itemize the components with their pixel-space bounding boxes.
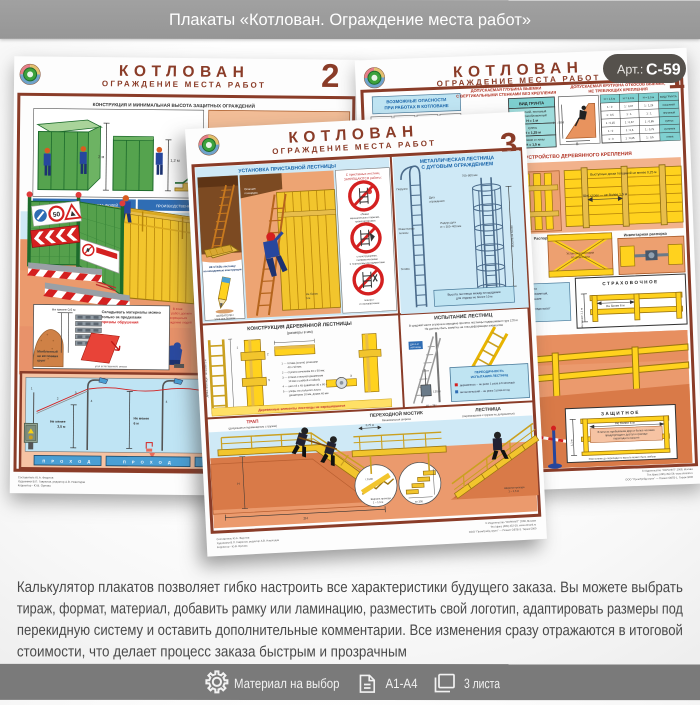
svg-text:50: 50 (53, 211, 61, 219)
svg-text:1 : 0: 1 : 0 (608, 129, 614, 133)
svg-text:6 м: 6 м (133, 421, 139, 425)
svg-text:лестницы: лестницы (410, 345, 421, 349)
svg-text:2: 2 (321, 57, 340, 94)
svg-text:120 кг: 120 кг (433, 389, 441, 393)
svg-text:Калькулятор плакатов позволяет: Калькулятор плакатов позволяет гибко нас… (17, 579, 683, 596)
svg-text:Не более 6 м: Не более 6 м (606, 303, 625, 308)
svg-text:супесь: супесь (665, 119, 674, 122)
svg-text:1 : 0,5: 1 : 0,5 (626, 128, 634, 132)
svg-text:1 : 1: 1 : 1 (626, 112, 632, 116)
svg-text:перекидную систему и оставить: перекидную систему и оставить дополнител… (17, 622, 683, 639)
svg-text:1 : 0,25: 1 : 0,25 (606, 121, 616, 125)
svg-text:1 – 1,5 м: 1 – 1,5 м (373, 500, 384, 505)
svg-text:Н: Н (561, 121, 564, 125)
svg-text:Не более 6 м: Не более 6 м (615, 421, 635, 426)
svg-text:5: 5 (268, 378, 270, 382)
svg-text:0,75 м: 0,75 м (366, 423, 374, 427)
svg-text:Поручни: Поручни (396, 186, 408, 191)
svg-text:ОГРАЖДЕНИЕ МЕСТА РАБОТ: ОГРАЖДЕНИЕ МЕСТА РАБОТ (102, 79, 266, 90)
svg-text:R = 350–400 мм: R = 350–400 мм (440, 224, 461, 229)
svg-text:1 : 0,25: 1 : 0,25 (625, 136, 635, 140)
svg-text:А1-А4: А1-А4 (385, 676, 417, 691)
svg-text:2: 2 (57, 397, 59, 401)
svg-text:Н : В: Н : В (553, 121, 561, 125)
svg-text:ограждения: ограждения (429, 198, 445, 203)
svg-text:НЕ ТРЕБУЮЩИХ КРЕПЛЕНИЯ: НЕ ТРЕБУЮЩИХ КРЕПЛЕНИЯ (588, 86, 648, 93)
svg-text:Н = 1,5 м: Н = 1,5 м (603, 97, 615, 101)
svg-text:В зоне: В зоне (173, 307, 183, 311)
svg-text:песчаный: песчаный (663, 110, 676, 114)
svg-text:ТРАП: ТРАП (246, 419, 258, 425)
svg-text:1 : 0,75: 1 : 0,75 (645, 127, 655, 131)
svg-text:Минимальная ширина: Минимальная ширина (382, 417, 412, 423)
svg-text:1: 1 (236, 345, 238, 349)
svg-text:1 : 0: 1 : 0 (608, 137, 614, 141)
svg-text:по диагонали: по диагонали (571, 255, 590, 260)
svg-text:2 м: 2 м (98, 154, 104, 159)
svg-text:КОТЛОВАН: КОТЛОВАН (119, 63, 250, 81)
svg-text:УСТРОЙСТВО ДЕРЕВЯННОГО КРЕПЛЕН: УСТРОЙСТВО ДЕРЕВЯННОГО КРЕПЛЕНИЯ (525, 149, 632, 161)
svg-text:П Р О Х О Д: П Р О Х О Д (42, 459, 92, 465)
svg-text:Н = 3,0 м: Н = 3,0 м (622, 96, 634, 100)
svg-text:1 : 0: 1 : 0 (607, 105, 613, 109)
svg-text:1 : 0,67: 1 : 0,67 (624, 104, 634, 108)
svg-text:Тетива: Тетива (401, 266, 411, 270)
svg-text:700–800 мм: 700–800 мм (462, 173, 478, 178)
svg-text:Материал на выбор: Материал на выбор (234, 676, 340, 691)
svg-text:Н = 1 м: Н = 1 м (526, 119, 538, 123)
svg-text:площадка: площадка (244, 190, 258, 195)
svg-text:супесь: супесь (528, 126, 538, 130)
svg-text:2Н: 2Н (303, 516, 308, 520)
svg-text:4: 4 (166, 400, 168, 404)
svg-text:2: 2 (267, 352, 269, 356)
svg-text:Не менее: Не менее (133, 416, 149, 420)
svg-text:только за пределами: только за пределами (102, 315, 143, 319)
svg-text:4: 4 (91, 399, 93, 403)
svg-text:1 : 1,25: 1 : 1,25 (644, 103, 654, 107)
svg-text:1,1 м: 1,1 м (569, 439, 573, 446)
svg-text:1,2 м: 1,2 м (170, 158, 180, 163)
svg-text:1 – 1,5 м: 1 – 1,5 м (508, 489, 519, 494)
svg-text:призмы обрушения: призмы обрушения (101, 320, 138, 324)
svg-text:не 300: не 300 (415, 499, 424, 503)
svg-text:3: 3 (350, 374, 352, 378)
svg-text:1 : 0,85: 1 : 0,85 (645, 119, 655, 123)
svg-text:Плакаты «Котлован. Ограждение: Плакаты «Котлован. Ограждение места рабо… (169, 11, 531, 29)
svg-text:Складывать материалы можно: Складывать материалы можно (102, 310, 162, 315)
svg-text:тираж, формат, материал, добав: тираж, формат, материал, добавить рамку … (17, 600, 683, 617)
svg-text:глина: глина (666, 135, 674, 138)
svg-text:суглинок: суглинок (664, 127, 676, 130)
svg-text:Не менее 0,6 м: Не менее 0,6 м (52, 308, 76, 312)
svg-text:угол естественного откоса: угол естественного откоса (95, 365, 127, 368)
svg-text:3,5 м: 3,5 м (57, 425, 66, 429)
svg-text:Не менее 1,1 м: Не менее 1,1 м (579, 308, 584, 328)
svg-text:Н = 1,25 м: Н = 1,25 м (524, 130, 541, 135)
svg-text:75 – 75°: 75 – 75° (426, 403, 437, 408)
svg-text:1 : 0,67: 1 : 0,67 (625, 120, 635, 124)
svg-text:(размеры в мм): (размеры в мм) (287, 330, 313, 335)
svg-text:полосы: полосы (399, 230, 409, 234)
svg-text:Арт.:: Арт.: (617, 62, 643, 76)
svg-text:5 м: 5 м (306, 296, 311, 300)
svg-text:1: 1 (31, 386, 33, 390)
svg-text:1 : 0,5: 1 : 0,5 (646, 135, 654, 139)
svg-text:1 : 0,5: 1 : 0,5 (606, 113, 614, 117)
svg-text:ВИД ГРУНТА: ВИД ГРУНТА (660, 94, 677, 99)
svg-text:ВИД ГРУНТА: ВИД ГРУНТА (519, 100, 544, 106)
svg-text:1 : 1: 1 : 1 (646, 111, 652, 115)
svg-text:грунт: грунт (37, 358, 46, 362)
svg-text:насыпной: насыпной (662, 102, 675, 106)
svg-text:Корректор - Ю.В. Орлова: Корректор - Ю.В. Орлова (18, 483, 51, 487)
svg-text:Инвентарная распорка: Инвентарная распорка (623, 232, 667, 238)
svg-text:Н = 1,5 м: Н = 1,5 м (526, 142, 541, 147)
svg-text:3 листа: 3 листа (464, 676, 500, 691)
svg-text:Не менее: Не менее (50, 420, 66, 424)
svg-text:(допускается перемещение с гру: (допускается перемещение с грузом) (228, 424, 277, 431)
svg-text:П Р О Х О Д: П Р О Х О Д (123, 459, 173, 465)
svg-text:стоимости, что делает процесс: стоимости, что делает процесс заказа быс… (17, 643, 407, 660)
svg-text:3: 3 (75, 391, 77, 395)
svg-text:Н = 5,0 м: Н = 5,0 м (642, 95, 654, 99)
svg-text:t 1500: t 1500 (365, 477, 373, 481)
svg-text:1 — тетива (сосна) сечением: 1 — тетива (сосна) сечением (281, 359, 318, 365)
svg-text:С-59: С-59 (646, 62, 681, 79)
